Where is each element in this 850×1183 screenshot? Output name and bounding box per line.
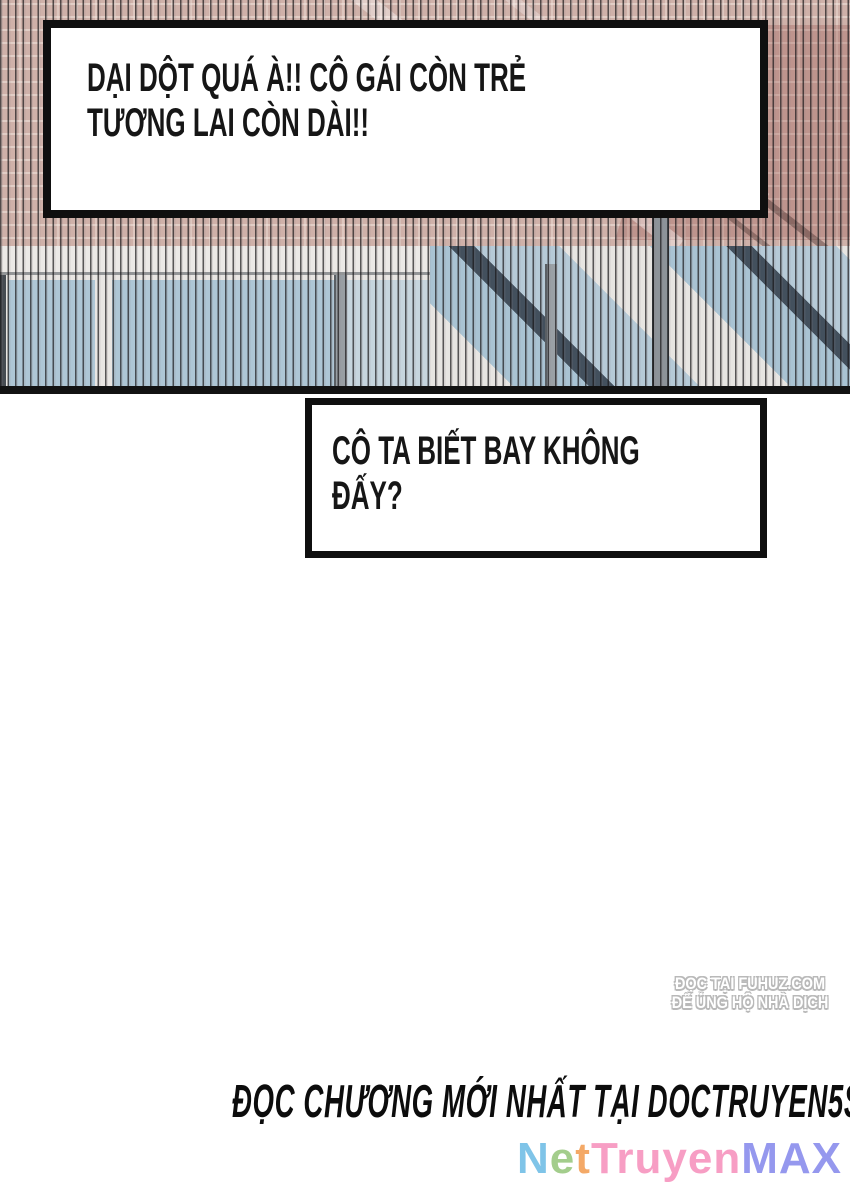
- site-logo-segment: Truyen: [591, 1134, 741, 1183]
- speech-bubble-1-text: DẠI DỘT QUÁ À!! CÔ GÁI CÒN TRẺ TƯƠNG LAI…: [87, 56, 524, 146]
- site-logo-segment: N: [517, 1134, 550, 1183]
- site-logo-segment: e: [550, 1134, 575, 1183]
- speech-line: DẠI DỘT QUÁ À!! CÔ GÁI CÒN TRẺ: [87, 56, 524, 101]
- translator-watermark: ĐỌC TẠI FUHUZ.COM ĐỂ ỦNG HỘ NHÀ DỊCH: [650, 974, 850, 1012]
- speech-line: ĐẤY?: [332, 474, 610, 519]
- speech-line: TƯƠNG LAI CÒN DÀI!!: [87, 101, 524, 146]
- speech-bubble-1: DẠI DỘT QUÁ À!! CÔ GÁI CÒN TRẺ TƯƠNG LAI…: [43, 20, 768, 218]
- comic-page: DẠI DỘT QUÁ À!! CÔ GÁI CÒN TRẺ TƯƠNG LAI…: [0, 0, 850, 1183]
- watermark-line: ĐỌC TẠI FUHUZ.COM: [665, 974, 835, 993]
- footer-promo: ĐỌC CHƯƠNG MỚI NHẤT TẠI DOCTRUYEN5S.NET: [0, 1075, 850, 1127]
- speech-bubble-2: CÔ TA BIẾT BAY KHÔNG ĐẤY?: [305, 398, 767, 558]
- site-logo-segment: t: [575, 1134, 591, 1183]
- photo-bottom-edge: [0, 386, 850, 394]
- footer-promo-text: ĐỌC CHƯƠNG MỚI NHẤT TẠI DOCTRUYEN5S.NET: [232, 1075, 850, 1127]
- site-logo-segment: MAX: [741, 1134, 842, 1183]
- speech-bubble-2-text: CÔ TA BIẾT BAY KHÔNG ĐẤY?: [332, 429, 610, 519]
- site-logo: NetTruyenMAX: [517, 1136, 842, 1182]
- watermark-line: ĐỂ ỦNG HỘ NHÀ DỊCH: [665, 993, 835, 1012]
- speech-line: CÔ TA BIẾT BAY KHÔNG: [332, 429, 610, 474]
